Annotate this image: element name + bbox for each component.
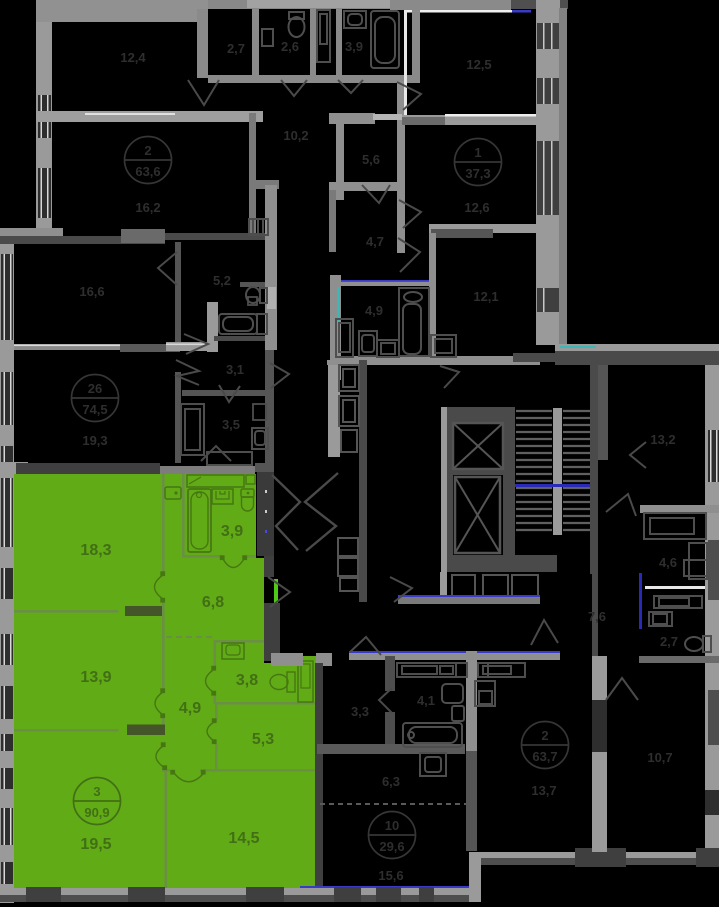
svg-text:63,7: 63,7 xyxy=(532,749,557,764)
svg-text:12,5: 12,5 xyxy=(466,57,491,72)
svg-text:63,6: 63,6 xyxy=(135,164,160,179)
svg-text:2: 2 xyxy=(144,143,151,158)
svg-text:10,2: 10,2 xyxy=(283,128,308,143)
svg-text:3: 3 xyxy=(93,784,100,799)
svg-text:26: 26 xyxy=(88,381,102,396)
svg-text:10: 10 xyxy=(385,818,399,833)
svg-text:3,1: 3,1 xyxy=(226,362,244,377)
svg-text:2,6: 2,6 xyxy=(281,39,299,54)
svg-text:4,1: 4,1 xyxy=(417,693,435,708)
svg-text:13,2: 13,2 xyxy=(650,432,675,447)
svg-text:5,2: 5,2 xyxy=(213,273,231,288)
svg-text:12,1: 12,1 xyxy=(473,289,498,304)
svg-text:4,6: 4,6 xyxy=(659,555,677,570)
svg-text:10,7: 10,7 xyxy=(647,750,672,765)
svg-text:3,3: 3,3 xyxy=(351,704,369,719)
svg-text:2,7: 2,7 xyxy=(227,41,245,56)
svg-text:37,3: 37,3 xyxy=(465,166,490,181)
svg-text:3,5: 3,5 xyxy=(222,417,240,432)
svg-text:3,9: 3,9 xyxy=(345,39,363,54)
svg-text:1: 1 xyxy=(474,145,481,160)
svg-text:19,5: 19,5 xyxy=(80,836,111,853)
svg-text:15,6: 15,6 xyxy=(378,868,403,883)
svg-text:12,4: 12,4 xyxy=(120,50,146,65)
svg-text:90,9: 90,9 xyxy=(84,805,109,820)
svg-text:14,5: 14,5 xyxy=(228,830,259,847)
svg-text:5,6: 5,6 xyxy=(362,152,380,167)
svg-text:3,8: 3,8 xyxy=(236,672,258,689)
svg-text:6,3: 6,3 xyxy=(382,774,400,789)
svg-text:4,9: 4,9 xyxy=(365,303,383,318)
svg-text:13,7: 13,7 xyxy=(531,783,556,798)
svg-text:2,7: 2,7 xyxy=(660,634,678,649)
svg-text:18,3: 18,3 xyxy=(80,542,111,559)
svg-text:16,2: 16,2 xyxy=(135,200,160,215)
svg-text:4,7: 4,7 xyxy=(366,234,384,249)
svg-text:29,6: 29,6 xyxy=(379,839,404,854)
svg-text:5,3: 5,3 xyxy=(252,731,274,748)
svg-text:16,6: 16,6 xyxy=(79,284,104,299)
svg-text:2: 2 xyxy=(541,728,548,743)
svg-text:12,6: 12,6 xyxy=(464,200,489,215)
svg-text:19,3: 19,3 xyxy=(82,433,107,448)
svg-text:3,9: 3,9 xyxy=(221,523,243,540)
svg-text:6,8: 6,8 xyxy=(202,594,224,611)
svg-text:7,6: 7,6 xyxy=(588,609,606,624)
svg-text:74,5: 74,5 xyxy=(82,402,107,417)
svg-text:13,9: 13,9 xyxy=(80,669,111,686)
svg-text:4,9: 4,9 xyxy=(179,700,201,717)
